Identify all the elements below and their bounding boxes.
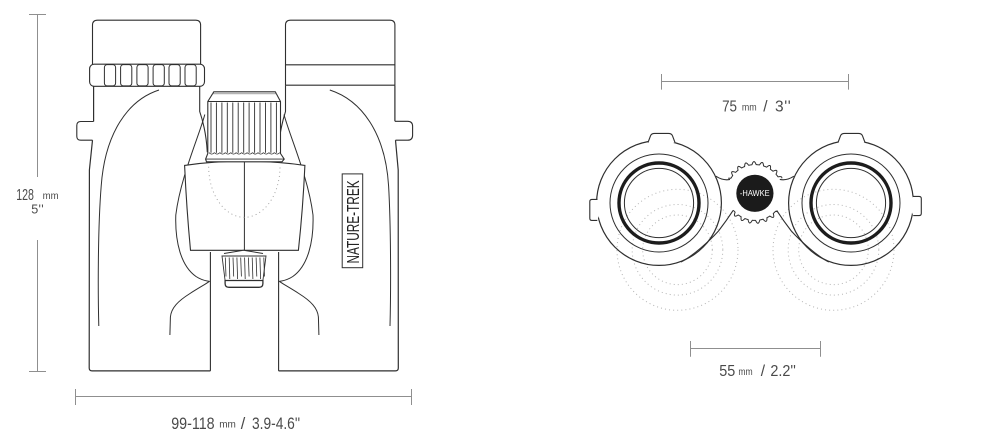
svg-text:55: 55 [719, 363, 735, 381]
svg-text:mm: mm [738, 366, 753, 377]
svg-text:/: / [761, 363, 766, 380]
svg-text:5'': 5'' [31, 203, 44, 217]
svg-text:/: / [241, 415, 246, 433]
svg-text:2.2'': 2.2'' [770, 363, 796, 381]
svg-text:-HAWKE: -HAWKE [740, 189, 770, 198]
svg-text:3.9-4.6'': 3.9-4.6'' [252, 415, 300, 433]
svg-text:3'': 3'' [775, 98, 791, 115]
svg-text:mm: mm [43, 191, 59, 202]
svg-text:75: 75 [722, 98, 737, 115]
svg-text:mm: mm [742, 102, 757, 114]
svg-text:128: 128 [16, 186, 34, 204]
svg-text:/: / [763, 98, 768, 115]
svg-text:99-118: 99-118 [171, 415, 214, 433]
svg-text:mm: mm [219, 420, 236, 431]
svg-text:NATURE-TREK: NATURE-TREK [343, 180, 363, 263]
